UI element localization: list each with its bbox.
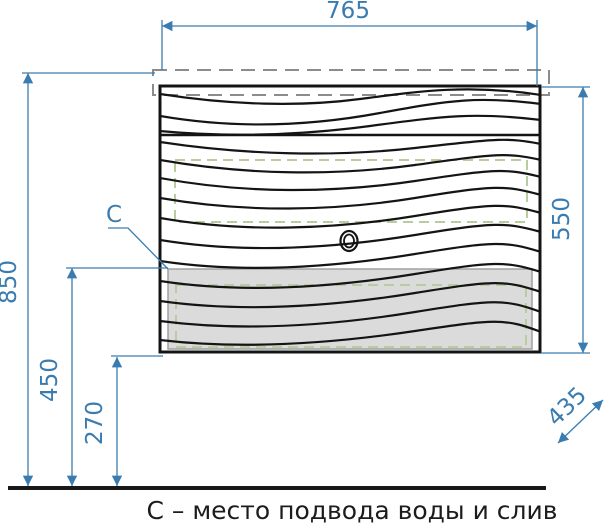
drawing-caption: С – место подвода воды и слив <box>146 496 557 525</box>
dim-270-label: 270 <box>82 401 108 445</box>
connection-point-label: С <box>106 202 122 228</box>
drain-hole <box>341 231 358 251</box>
dimension-height-850: 850 <box>0 73 155 486</box>
dimension-height-550: 550 <box>541 87 590 353</box>
technical-drawing: 765 850 550 450 270 435 С С – место подв… <box>0 0 613 528</box>
dim-450-label: 450 <box>37 358 63 402</box>
dim-435-label: 435 <box>542 382 592 431</box>
dim-550-label: 550 <box>549 197 575 241</box>
dimension-depth-435: 435 <box>542 382 603 443</box>
dimension-height-450: 450 <box>37 268 168 486</box>
dim-850-label: 850 <box>0 260 22 304</box>
dimension-height-270: 270 <box>82 356 163 486</box>
dimension-width-765: 765 <box>162 0 537 86</box>
dim-765-label: 765 <box>326 0 370 24</box>
drawer-panel <box>168 269 532 349</box>
countertop-dashed-outline <box>153 70 549 95</box>
